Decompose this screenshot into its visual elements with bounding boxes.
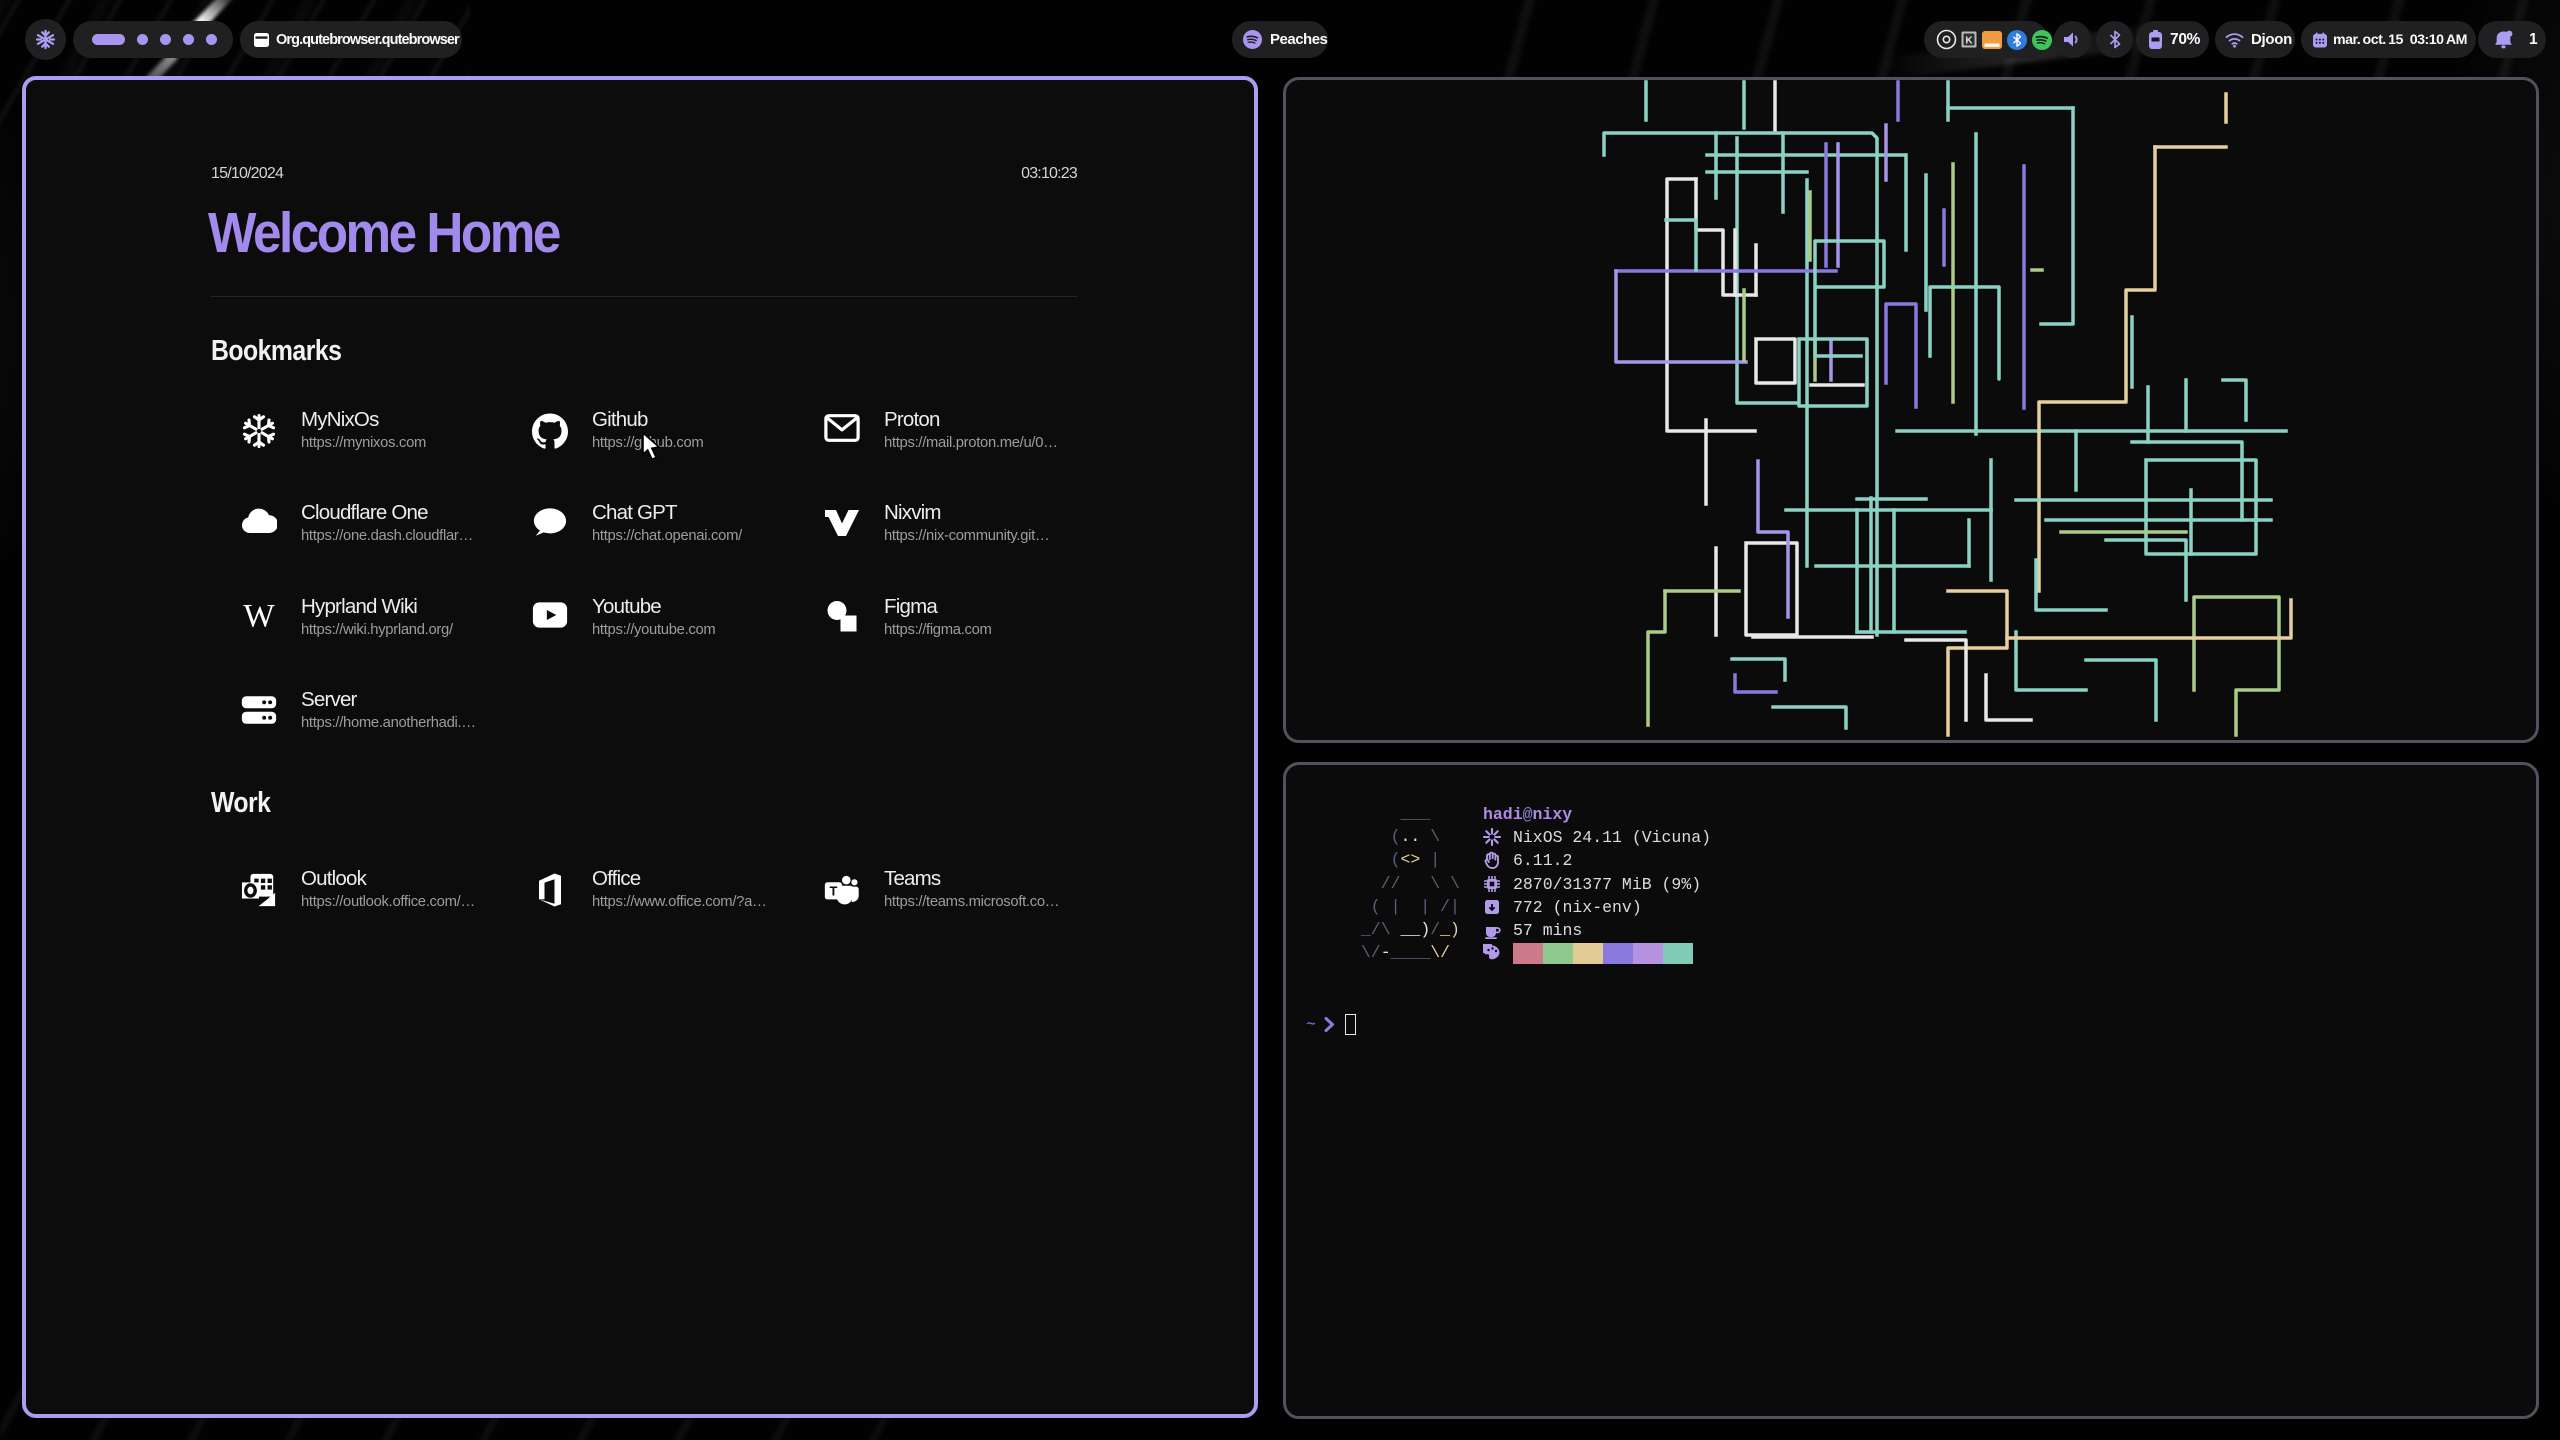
- svg-text:W: W: [243, 600, 275, 634]
- svg-text:T: T: [829, 884, 837, 899]
- svg-text:K: K: [1965, 36, 1973, 47]
